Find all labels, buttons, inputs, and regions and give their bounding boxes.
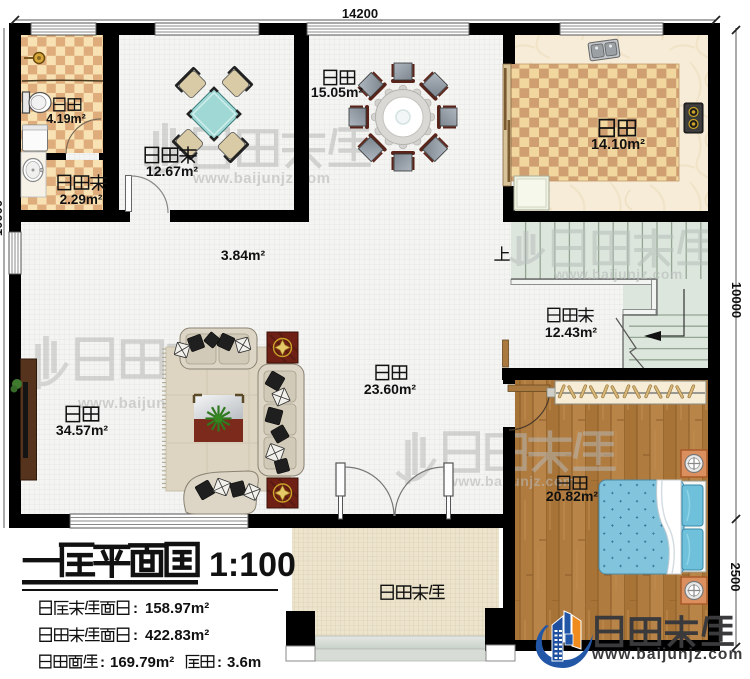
svg-text::: : [133,600,138,617]
svg-text:10000: 10000 [0,200,5,236]
svg-text::: : [133,627,138,644]
svg-text::: : [100,654,105,671]
svg-text:1:100: 1:100 [209,546,296,584]
svg-text:34.57m²: 34.57m² [56,422,108,438]
svg-text:3.84m²: 3.84m² [221,247,266,263]
svg-text:10000: 10000 [729,282,744,318]
svg-text:3.6m: 3.6m [227,654,261,671]
svg-text:www.baijunjz.com: www.baijunjz.com [553,266,683,282]
svg-text:422.83m²: 422.83m² [145,627,209,644]
svg-text:12.67m²: 12.67m² [146,163,198,179]
svg-text:2500: 2500 [728,563,743,592]
svg-text:15.05m²: 15.05m² [311,84,363,100]
svg-text:2.29m²: 2.29m² [60,192,103,207]
svg-text:14200: 14200 [342,6,378,21]
svg-text:14.10m²: 14.10m² [591,137,645,153]
svg-text:12.43m²: 12.43m² [545,324,597,340]
svg-text:23.60m²: 23.60m² [364,381,416,397]
svg-text:20.82m²: 20.82m² [546,488,598,504]
svg-text:www.baijunjz.com: www.baijunjz.com [192,170,330,187]
svg-text:158.97m²: 158.97m² [145,600,209,617]
svg-text:www.baijunjz.com: www.baijunjz.com [591,646,743,663]
svg-text:4.19m²: 4.19m² [46,112,86,126]
svg-text:169.79m²: 169.79m² [110,654,174,671]
svg-text::: : [217,654,222,671]
